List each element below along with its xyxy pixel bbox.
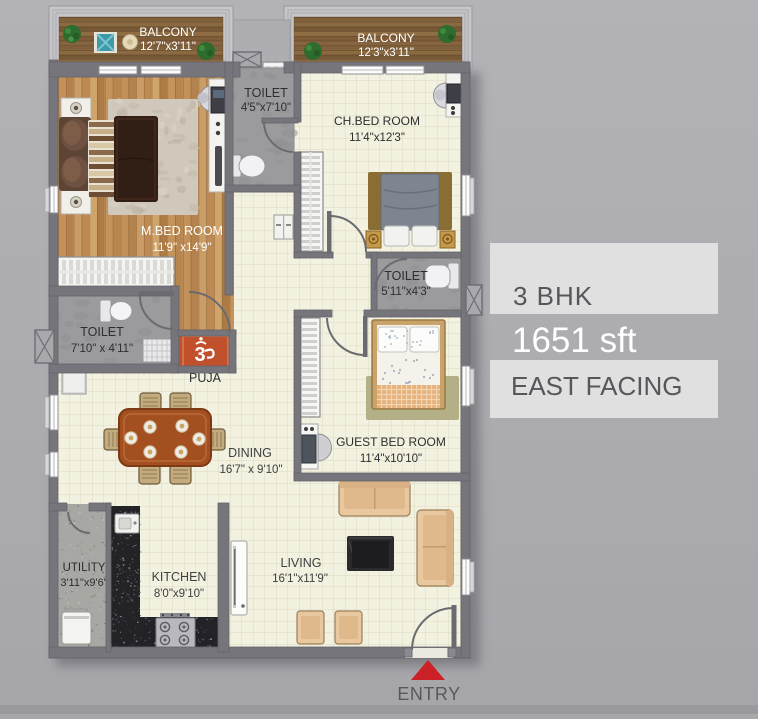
- svg-text:BALCONY: BALCONY: [357, 31, 414, 45]
- svg-text:ENTRY: ENTRY: [397, 684, 460, 704]
- svg-text:4'5"x7'10": 4'5"x7'10": [241, 102, 291, 114]
- svg-text:16'7" x 9'10": 16'7" x 9'10": [219, 464, 282, 476]
- svg-text:11'4"x12'3": 11'4"x12'3": [349, 132, 405, 144]
- svg-text:12'7"x3'11": 12'7"x3'11": [140, 41, 196, 53]
- svg-text:7'10" x 4'11": 7'10" x 4'11": [71, 343, 133, 355]
- svg-text:3'11"x9'6": 3'11"x9'6": [60, 577, 107, 589]
- svg-text:11'4"x10'10": 11'4"x10'10": [360, 453, 422, 465]
- svg-text:11'9" x14'9": 11'9" x14'9": [152, 242, 211, 254]
- svg-text:12'3"x3'11": 12'3"x3'11": [358, 47, 414, 59]
- svg-text:KITCHEN: KITCHEN: [152, 570, 207, 584]
- svg-text:EAST FACING: EAST FACING: [511, 371, 682, 401]
- svg-text:DINING: DINING: [228, 446, 272, 460]
- svg-text:CH.BED ROOM: CH.BED ROOM: [334, 114, 420, 128]
- svg-text:TOILET: TOILET: [80, 325, 124, 339]
- svg-text:M.BED ROOM: M.BED ROOM: [141, 224, 223, 238]
- svg-text:BALCONY: BALCONY: [139, 25, 196, 39]
- svg-text:1651 sft: 1651 sft: [512, 321, 637, 360]
- svg-text:8'0"x9'10": 8'0"x9'10": [154, 588, 204, 600]
- svg-text:16'1"x11'9": 16'1"x11'9": [272, 573, 328, 585]
- svg-text:LIVING: LIVING: [281, 556, 322, 570]
- svg-text:TOILET: TOILET: [384, 269, 428, 283]
- svg-text:5'11"x4'3": 5'11"x4'3": [381, 286, 430, 298]
- svg-text:GUEST BED ROOM: GUEST BED ROOM: [336, 435, 446, 449]
- svg-text:3: 3: [194, 344, 205, 366]
- svg-text:TOILET: TOILET: [244, 86, 288, 100]
- svg-text:3 BHK: 3 BHK: [513, 281, 593, 311]
- svg-text:UTILITY: UTILITY: [63, 562, 106, 574]
